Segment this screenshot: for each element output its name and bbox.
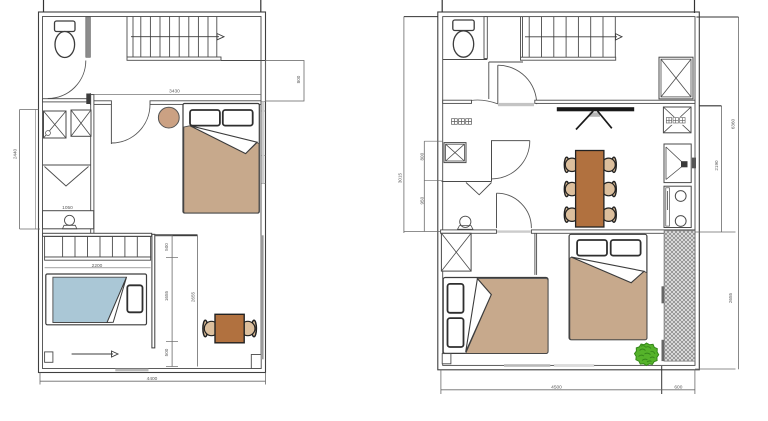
- svg-text:950: 950: [420, 196, 425, 204]
- svg-text:1655: 1655: [164, 290, 169, 301]
- svg-text:2440: 2440: [13, 148, 18, 159]
- svg-text:2190: 2190: [714, 160, 719, 171]
- svg-text:2655: 2655: [191, 291, 196, 302]
- svg-text:500: 500: [164, 348, 169, 356]
- svg-text:4400: 4400: [147, 376, 158, 382]
- svg-text:2655: 2655: [728, 292, 733, 303]
- svg-text:800: 800: [420, 152, 425, 160]
- svg-text:3015: 3015: [397, 172, 402, 183]
- svg-text:3430: 3430: [169, 89, 180, 95]
- svg-text:2200: 2200: [92, 263, 103, 269]
- svg-text:500: 500: [164, 243, 169, 251]
- svg-text:800: 800: [296, 75, 301, 83]
- svg-text:600: 600: [674, 385, 682, 391]
- svg-text:6360: 6360: [730, 118, 735, 129]
- svg-text:1050: 1050: [62, 205, 73, 211]
- svg-text:4500: 4500: [551, 385, 562, 391]
